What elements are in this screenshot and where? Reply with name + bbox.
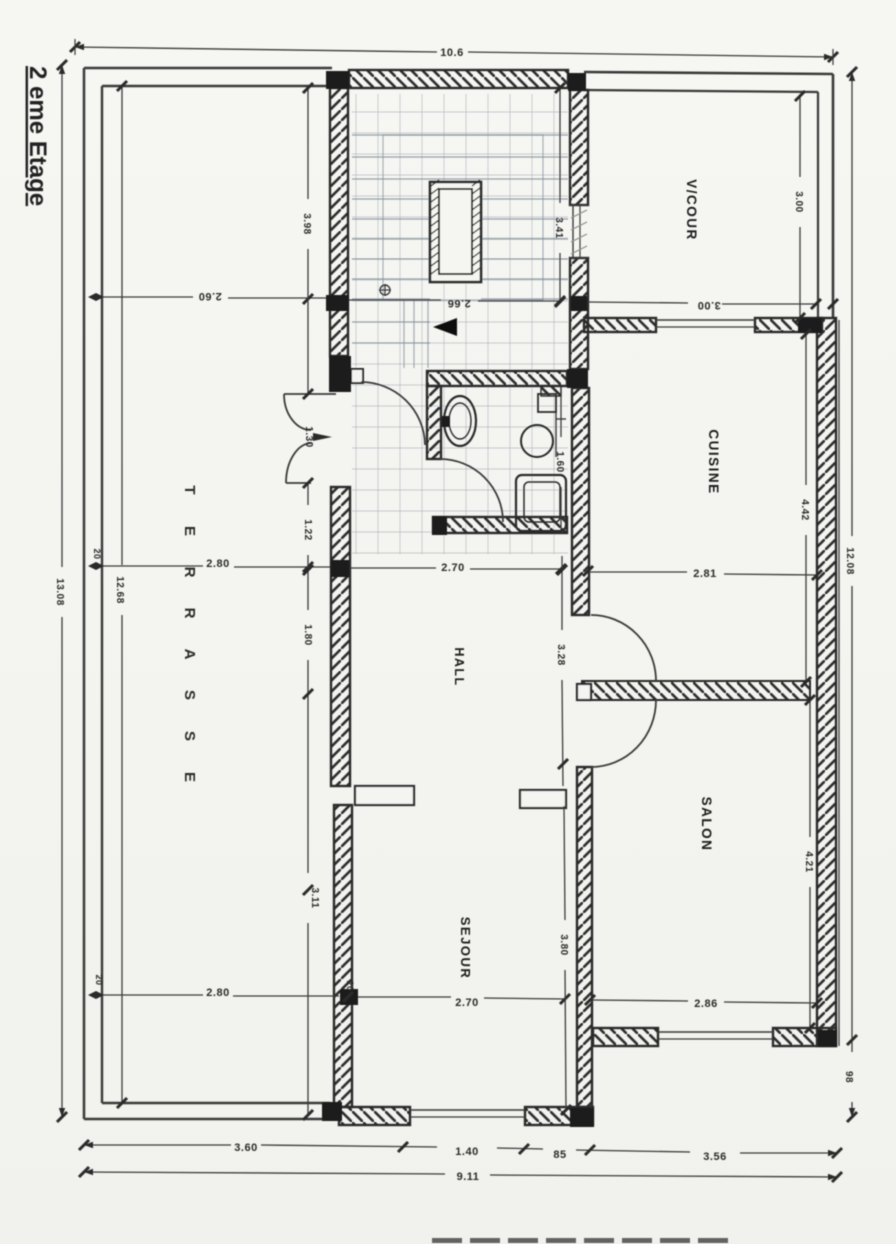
svg-text:E: E [181, 772, 198, 782]
svg-text:85: 85 [553, 1149, 566, 1161]
svg-text:2.70: 2.70 [455, 997, 478, 1009]
svg-text:3.11: 3.11 [309, 888, 320, 909]
svg-text:1.22: 1.22 [302, 519, 313, 540]
svg-text:HALL: HALL [452, 647, 466, 686]
svg-text:20: 20 [94, 974, 104, 985]
svg-text:13.08: 13.08 [54, 578, 65, 606]
svg-text:20: 20 [92, 548, 102, 559]
svg-text:12.08: 12.08 [844, 547, 855, 575]
svg-text:1.60: 1.60 [554, 451, 565, 472]
svg-text:SEJOUR: SEJOUR [458, 917, 473, 979]
svg-text:12.68: 12.68 [114, 576, 125, 604]
svg-text:SALON: SALON [699, 797, 714, 852]
svg-text:3.80: 3.80 [558, 934, 569, 955]
svg-text:3.60: 3.60 [234, 1142, 257, 1154]
svg-text:3.00: 3.00 [697, 299, 720, 311]
svg-text:3.00: 3.00 [793, 191, 804, 212]
svg-text:2.70: 2.70 [441, 562, 464, 574]
svg-text:9.11: 9.11 [457, 1171, 480, 1183]
svg-text:4.21: 4.21 [803, 851, 814, 872]
svg-text:4.42: 4.42 [799, 499, 810, 520]
svg-text:2.81: 2.81 [693, 568, 716, 580]
svg-text:3.98: 3.98 [301, 213, 312, 234]
svg-text:2 eme Etage: 2 eme Etage [24, 66, 51, 206]
svg-text:CUISINE: CUISINE [706, 429, 721, 494]
svg-text:A: A [181, 649, 198, 660]
svg-text:R: R [181, 608, 198, 619]
svg-text:2.66: 2.66 [447, 297, 470, 309]
svg-text:3.28: 3.28 [555, 644, 566, 665]
svg-text:20: 20 [345, 980, 355, 991]
svg-text:10.6: 10.6 [440, 47, 463, 59]
svg-text:2.80: 2.80 [206, 987, 229, 999]
svg-text:2.86: 2.86 [694, 998, 717, 1010]
svg-text:V/COUR: V/COUR [684, 179, 699, 241]
svg-text:R: R [181, 567, 198, 578]
svg-text:98: 98 [843, 1071, 854, 1083]
svg-text:1.40: 1.40 [455, 1146, 478, 1158]
svg-text:1.30: 1.30 [303, 426, 314, 447]
svg-text:3.41: 3.41 [553, 217, 564, 238]
svg-text:2.80: 2.80 [206, 558, 229, 570]
svg-text:T: T [181, 485, 198, 494]
svg-text:S: S [181, 690, 198, 700]
svg-text:E: E [181, 526, 198, 536]
svg-text:2.60: 2.60 [198, 290, 221, 302]
svg-text:3.56: 3.56 [703, 1151, 726, 1163]
svg-text:1.80: 1.80 [302, 624, 313, 645]
svg-text:S: S [181, 731, 198, 741]
